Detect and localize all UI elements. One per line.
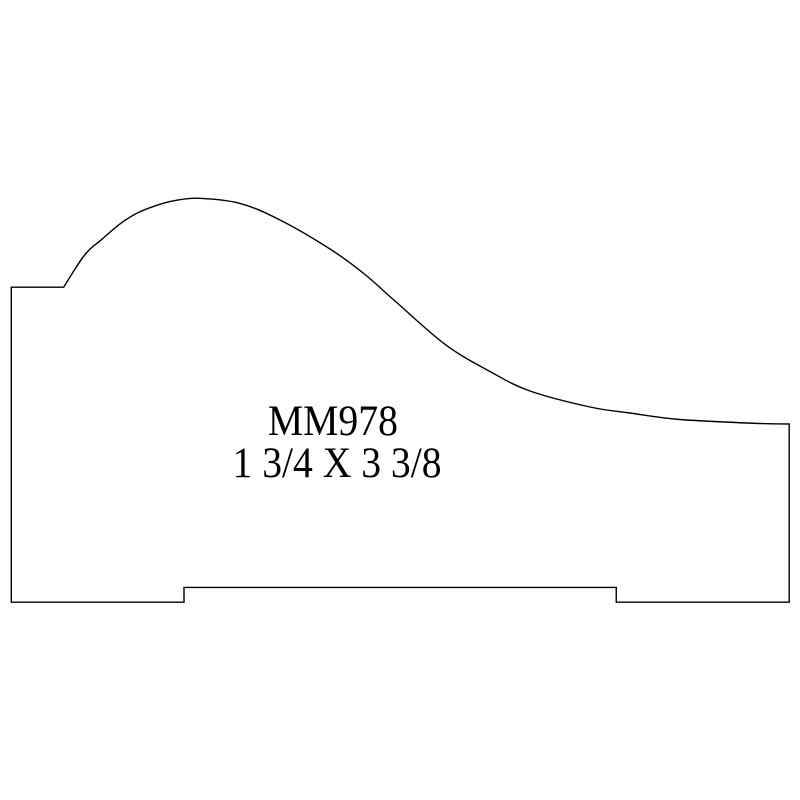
svg-text:MM978: MM978 [268, 398, 398, 445]
svg-text:1 3/4 X 3 3/8: 1 3/4 X 3 3/8 [233, 440, 442, 487]
